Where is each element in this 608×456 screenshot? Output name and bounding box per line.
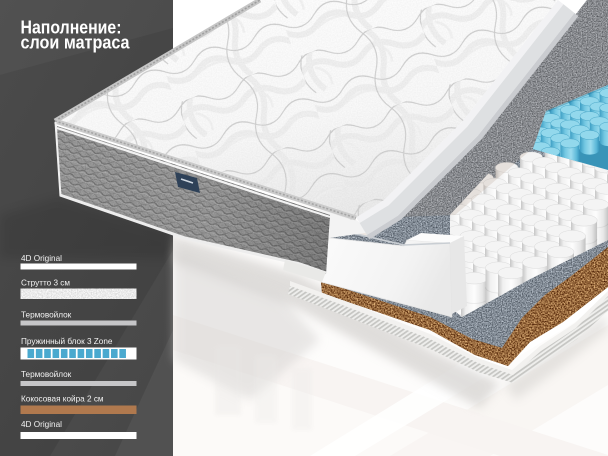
svg-text:Струтто 3 см: Струтто 3 см (21, 279, 70, 288)
svg-text:Термовойлок: Термовойлок (21, 370, 72, 379)
svg-text:Пружинный блок 3 Zone: Пружинный блок 3 Zone (21, 337, 113, 346)
svg-text:Кокосовая койра 2 см: Кокосовая койра 2 см (21, 395, 104, 404)
svg-text:Термовойлок: Термовойлок (21, 311, 72, 320)
svg-text:4D Original: 4D Original (21, 420, 62, 429)
svg-text:слои матраса: слои матраса (21, 32, 131, 53)
svg-text:4D Original: 4D Original (21, 254, 62, 263)
